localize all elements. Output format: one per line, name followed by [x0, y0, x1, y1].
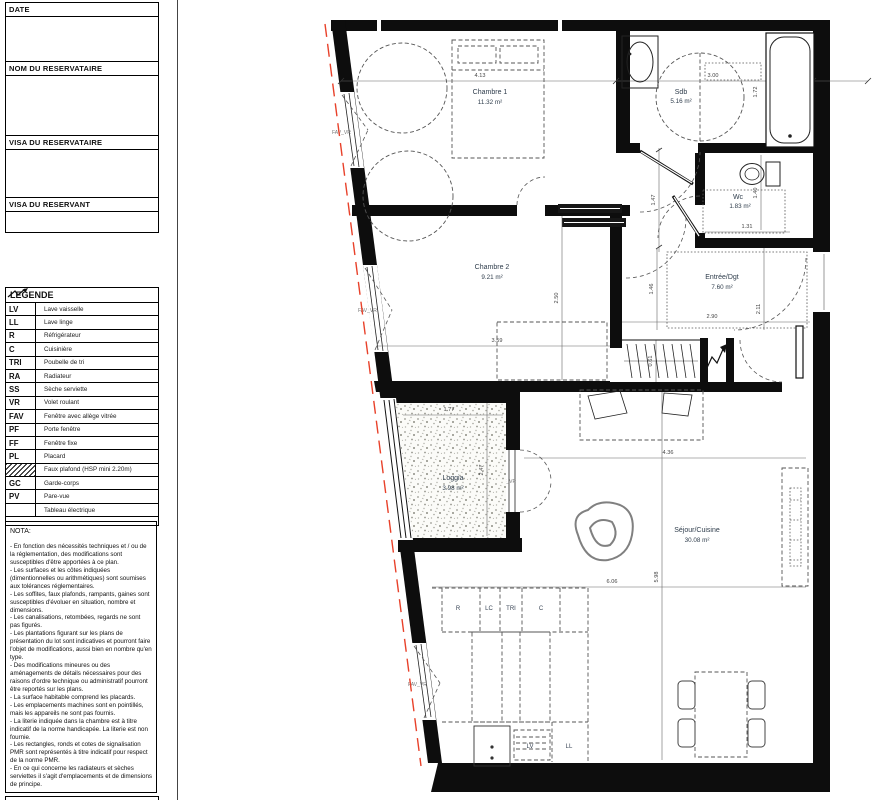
room-wc-name: Wc [733, 194, 744, 201]
floor-plan-svg: FAV_VR FAV_VR PF_VR FAV_VR [0, 0, 881, 800]
toilet [703, 162, 785, 233]
room-chambre2-name: Chambre 2 [475, 264, 510, 271]
wall-unit [782, 468, 808, 586]
placard [622, 340, 700, 378]
wardrobe-chambre2 [497, 322, 607, 380]
bathtub [766, 33, 814, 147]
room-chambre2-area: 9.21 m² [481, 274, 502, 281]
dim-sdb-d: 1.72 [753, 87, 759, 98]
sofa [580, 390, 703, 440]
sdb-fixtures [622, 36, 761, 141]
room-chambre1-name: Chambre 1 [473, 89, 508, 96]
pmr-circle-chambre1b [363, 151, 453, 241]
window-label-chambre2: FAV_VR [358, 308, 377, 314]
dining-set [678, 672, 765, 757]
kitchen-label-c: C [539, 606, 544, 612]
room-sdb-name: Sdb [675, 89, 688, 96]
kitchen-label-r: R [456, 606, 461, 612]
dim-sejour-w: 4.36 [663, 450, 674, 456]
entree-features [667, 252, 824, 378]
dim-chambre1-w: 4.13 [475, 73, 486, 79]
room-loggia-area: 3.98 m² [442, 485, 463, 492]
dim-hall-h: 1.47 [651, 195, 657, 206]
dim-wc-d: 1.40 [753, 188, 759, 199]
dim-loggia-d: 2.47 [479, 465, 485, 476]
room-sdb-area: 5.16 m² [670, 98, 691, 105]
kitchen-label-ll: LL [566, 744, 573, 750]
window-label-chambre1: FAV_VR [332, 130, 351, 136]
room-entree-area: 7.60 m² [711, 284, 732, 291]
dim-entree-w: 2.90 [707, 314, 718, 320]
room-entree-name: Entrée/Dgt [705, 274, 739, 281]
room-loggia-name: Loggia [442, 475, 463, 482]
room-sejour-area: 30.08 m² [685, 537, 710, 544]
dim-entree-h: 1.46 [649, 284, 655, 295]
room-chambre1-area: 11.32 m² [478, 99, 502, 106]
loggia-floor [395, 403, 506, 538]
kitchen: R LC TRI C LV LL [432, 588, 588, 766]
floor-plan-sheet: DATE NOM DU RESERVATAIRE VISA DU RESERVA… [0, 0, 881, 800]
dim-sejour-d: 5.98 [654, 572, 660, 583]
dim-chambre2-d: 2.50 [554, 293, 560, 304]
dim-entree-d: 2.11 [756, 304, 762, 314]
pmr-circle-chambre1 [357, 43, 447, 133]
kitchen-label-lv: LV [527, 744, 534, 750]
armchair [576, 502, 633, 560]
kitchen-label-lc: LC [485, 606, 493, 612]
dim-loggia-w: 1.77 [444, 407, 455, 413]
dim-wc-w: 1.31 [742, 224, 753, 230]
room-sejour-name: Séjour/Cuisine [674, 527, 720, 534]
dim-sejour-total-w: 6.06 [607, 579, 618, 585]
room-wc-area: 1.83 m² [729, 203, 750, 210]
kitchen-label-tri: TRI [506, 606, 516, 612]
tableau-electrique [706, 344, 727, 370]
dim-sdb-w: 3.00 [708, 73, 719, 79]
